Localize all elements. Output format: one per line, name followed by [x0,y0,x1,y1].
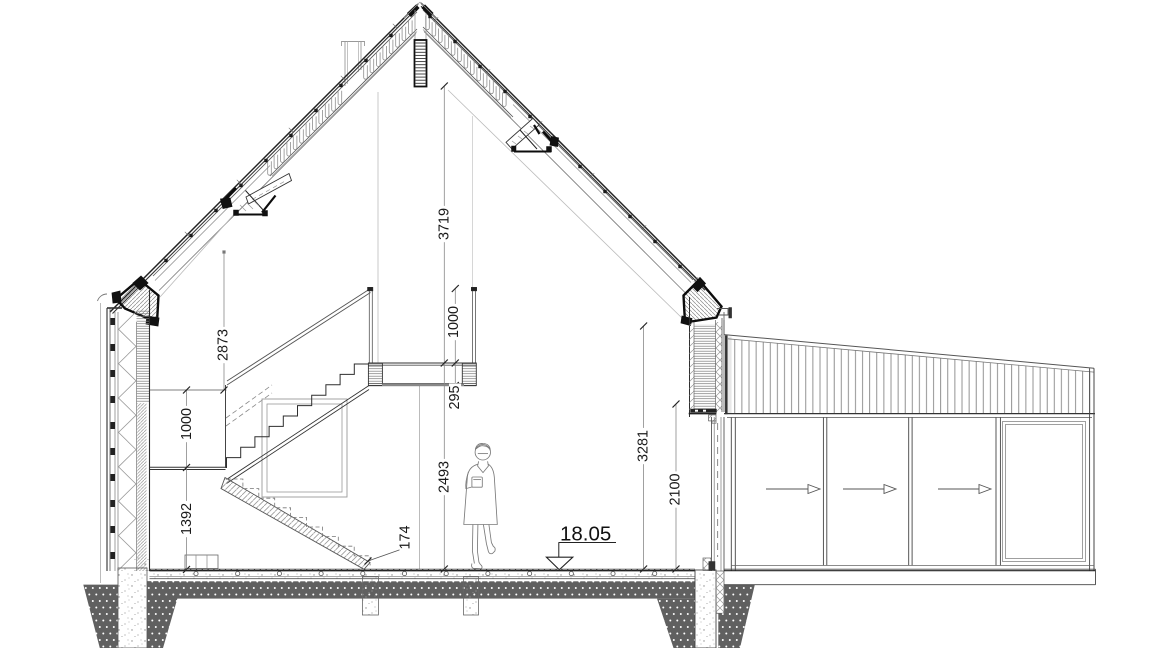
svg-text:2493: 2493 [436,461,452,493]
svg-text:3719: 3719 [436,208,452,240]
svg-text:174: 174 [398,525,414,549]
svg-text:1392: 1392 [179,503,195,535]
svg-text:1000: 1000 [446,306,462,338]
svg-text:2873: 2873 [216,329,232,361]
svg-text:3281: 3281 [636,430,652,462]
svg-text:2100: 2100 [668,473,684,505]
svg-text:295: 295 [447,385,463,409]
svg-text:1000: 1000 [179,408,195,440]
